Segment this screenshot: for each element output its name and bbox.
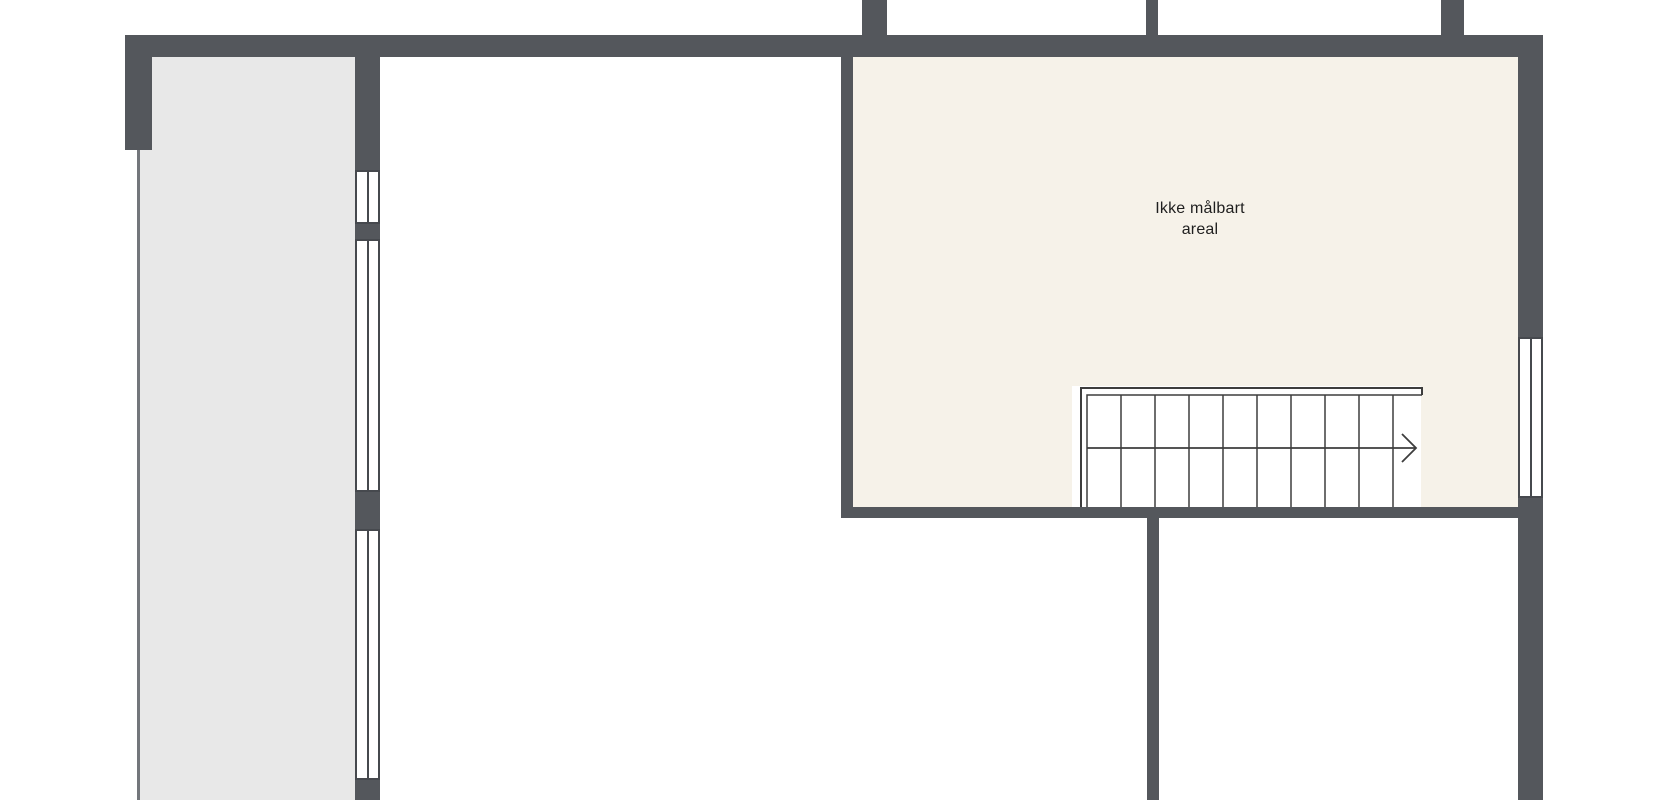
window-3 xyxy=(355,529,380,780)
wall-mid-segment-d xyxy=(355,780,380,800)
wall-right-lower xyxy=(1518,498,1543,800)
wall-mid-segment-b xyxy=(355,224,380,239)
gray-area-boundary-line xyxy=(137,150,140,800)
staircase-background xyxy=(1072,386,1421,507)
wall-stub-2 xyxy=(1146,0,1158,35)
window-1 xyxy=(355,170,380,224)
wall-left xyxy=(125,35,152,150)
wall-stub-3 xyxy=(1441,0,1464,35)
room-gray-area xyxy=(140,57,355,800)
wall-unmeasured-left xyxy=(841,57,853,518)
wall-right-upper xyxy=(1518,57,1543,337)
window-4 xyxy=(1518,337,1543,498)
wall-stub-1 xyxy=(862,0,887,35)
wall-unmeasured-bottom xyxy=(841,507,1518,518)
staircase xyxy=(1072,385,1426,507)
wall-mid-segment-c xyxy=(355,492,380,529)
wall-mid-segment-a xyxy=(355,57,380,170)
floor-plan: Ikke målbart areal xyxy=(0,0,1670,800)
wall-interior-vertical-lower xyxy=(1147,518,1159,800)
wall-top xyxy=(125,35,1543,57)
window-2 xyxy=(355,239,380,492)
room-label: Ikke målbart areal xyxy=(1145,198,1255,240)
